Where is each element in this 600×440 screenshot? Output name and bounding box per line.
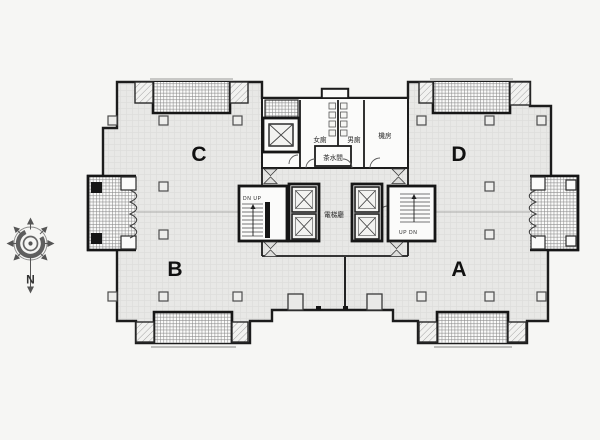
zone-d-label: D: [451, 143, 466, 166]
stair-right: UP DN: [388, 186, 435, 241]
terrace-left: [88, 176, 137, 250]
pantry-label: 茶水間: [323, 153, 343, 162]
elevator-bank-left: [289, 184, 319, 241]
womens-toilet-label: 女廁: [313, 135, 327, 144]
terrace-right: [529, 176, 578, 250]
floor-plan-svg: 女廁 男廁 機房 茶水間 DN UP: [0, 0, 600, 440]
service-elevator: [263, 118, 299, 152]
compass-rose: N: [11, 222, 51, 290]
zone-b-label: B: [167, 258, 182, 281]
mens-toilet-label: 男廁: [347, 135, 361, 144]
stair-left: DN UP: [239, 186, 287, 241]
zone-a-label: A: [451, 258, 466, 281]
stair-left-label: DN UP: [243, 196, 262, 202]
north-label: N: [26, 273, 35, 287]
zone-c-label: C: [191, 143, 206, 166]
balcony-bottom-left: [136, 312, 248, 347]
floor-plan-page: 女廁 男廁 機房 茶水間 DN UP: [0, 0, 600, 440]
duct-shaft: [265, 100, 298, 117]
toilet-block: 女廁 男廁 機房 茶水間: [262, 89, 408, 168]
stair-right-label: UP DN: [399, 230, 417, 236]
elevator-hall-label: 電梯廳: [324, 210, 344, 219]
machine-room-label: 機房: [378, 131, 392, 140]
elevator-bank-right: [352, 184, 382, 241]
balcony-top-left: [135, 79, 248, 113]
building: 女廁 男廁 機房 茶水間 DN UP: [88, 79, 578, 347]
